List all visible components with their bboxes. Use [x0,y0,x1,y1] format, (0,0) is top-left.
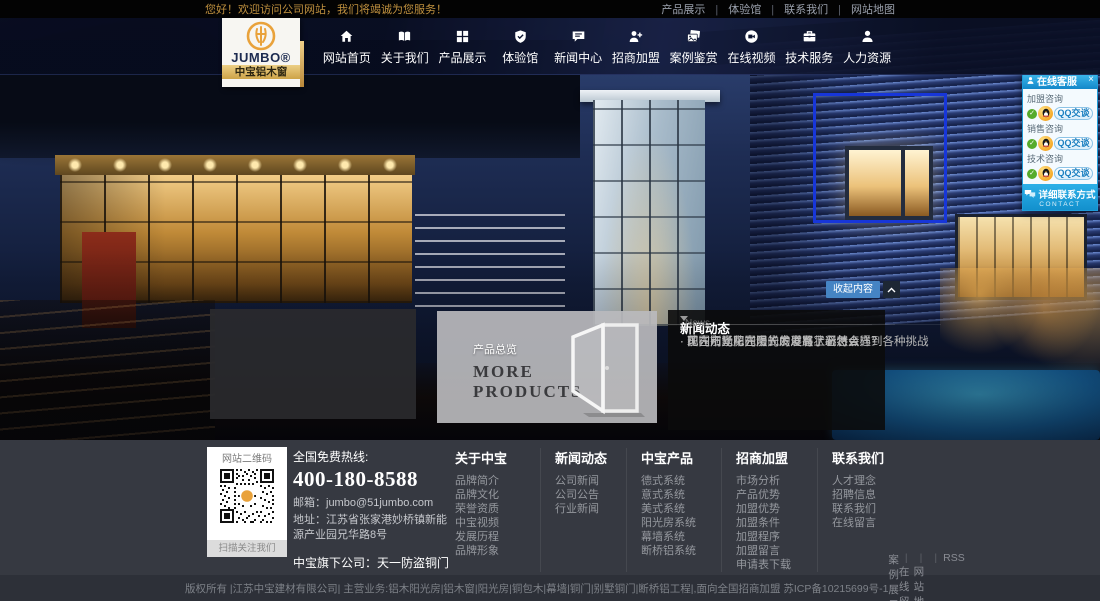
top-utility-bar: 您好！欢迎访问公司网站，我们将竭诚为您服务！ 产品展示 体验馆 联系我们 网站地… [0,0,1100,18]
service-panel-body: 加盟咨询 ✓ QQ交谈 销售咨询 ✓ [1023,89,1097,184]
bottom-links: 案例展示 在线留言 网站地图 RSS [888,552,964,601]
bottom-link-rss[interactable]: RSS [928,552,964,601]
logo-emblem-icon [246,21,276,51]
footer-link[interactable]: 意式系统 [641,488,709,502]
copyright-text: 版权所有 |江苏中宝建材有限公司| 主营业务:铝木阳光房|铝木窗|阳光房|铜包木… [185,581,888,596]
service-group-tech: 技术咨询 ✓ QQ交谈 [1027,153,1093,181]
footer-link[interactable]: 断桥铝系统 [641,544,709,558]
footer-col-title: 关于中宝 [455,448,528,467]
book-icon [397,29,412,44]
qr-caption: 扫描关注我们 [207,540,287,557]
footer-email: 邮箱：jumbo@51jumbo.com [293,496,453,511]
topbar-links: 产品展示 体验馆 联系我们 网站地图 [661,1,895,17]
close-icon[interactable]: × [1088,75,1094,85]
user-icon [860,29,875,44]
bottom-link-message[interactable]: 在线留言 [899,552,914,601]
nav-label: 人力资源 [843,49,891,66]
topbar-link-contact[interactable]: 联系我们 [761,1,828,17]
nav-item-home[interactable]: 网站首页 [318,18,376,75]
footer-link[interactable]: 美式系统 [641,502,709,516]
news-item[interactable]: 花园阳光房在漫长的道路上必然会遇到各种挑战 [668,324,941,357]
qq-penguin-icon [1038,106,1053,121]
bottom-link-sitemap[interactable]: 网站地图 [914,552,929,601]
footer-link[interactable]: 幕墙系统 [641,530,709,544]
nav-label: 在线视频 [727,49,775,66]
service-group-label: 加盟咨询 [1027,93,1093,106]
news-dropdown-caret-icon[interactable] [680,316,688,321]
footer-link[interactable]: 德式系统 [641,474,709,488]
welcome-message: 您好！欢迎访问公司网站，我们将竭诚为您服务！ [205,1,447,17]
footer-link[interactable]: 产品优势 [736,488,805,502]
footer-link[interactable]: 联系我们 [832,502,896,516]
qr-title: 网站二维码 [207,447,287,465]
footer-col-about: 关于中宝 品牌简介 品牌文化 荣誉资质 中宝视频 发展历程 品牌形象 [455,448,541,572]
collapse-control: 收起内容 [826,281,900,298]
footer-col-title: 新闻动态 [555,448,614,467]
footer-link[interactable]: 行业新闻 [555,502,614,516]
page: 您好！欢迎访问公司网站，我们将竭诚为您服务！ 产品展示 体验馆 联系我们 网站地… [0,0,1100,601]
nav-item-services[interactable]: 技术服务 [780,18,838,75]
footer-link[interactable]: 市场分析 [736,474,805,488]
online-status-icon: ✓ [1027,139,1037,149]
hotline-block: 全国免费热线: 400-180-8588 邮箱：jumbo@51jumbo.co… [293,448,453,571]
products-dark-panel[interactable] [210,309,416,419]
footer-link[interactable]: 加盟优势 [736,502,805,516]
footer-link[interactable]: 中宝视频 [455,516,528,530]
service-row: ✓ QQ交谈 [1027,136,1093,151]
nav-label: 招商加盟 [612,49,660,66]
online-service-panel: 在线客服 × 加盟咨询 ✓ QQ交谈 销售咨询 [1022,70,1098,211]
footer-link[interactable]: 品牌简介 [455,474,528,488]
more-products-panel[interactable]: 产品总览 MORE PRODUCTS [437,311,657,423]
hotline-label: 全国免费热线: [293,448,453,465]
footer-link[interactable]: 公司新闻 [555,474,614,488]
footer-col-title: 中宝产品 [641,448,709,467]
hero-photo: 收起内容 产品总览 MORE PRODUCTS 新闻动态 News [0,18,1100,440]
service-group-sales: 销售咨询 ✓ QQ交谈 [1027,123,1093,151]
brand-logo[interactable]: JUMBO® 中宝铝木窗 [222,17,300,87]
shield-icon [513,29,528,44]
footer-col-title: 招商加盟 [736,448,805,467]
service-row: ✓ QQ交谈 [1027,166,1093,181]
footer-col-news: 新闻动态 公司新闻 公司公告 行业新闻 [541,448,627,572]
contact-details-sublabel: CONTACT [1023,201,1097,208]
footer-link[interactable]: 品牌文化 [455,488,528,502]
photos-icon [686,29,701,44]
contact-details-label: 详细联系方式 [1038,187,1095,201]
nav-item-videos[interactable]: 在线视频 [723,18,781,75]
nav-label: 案例鉴赏 [670,49,718,66]
footer-link[interactable]: 发展历程 [455,530,528,544]
footer-link[interactable]: 申请表下载 [736,558,805,572]
footer-link[interactable]: 加盟程序 [736,530,805,544]
nav-item-hr[interactable]: 人力资源 [838,18,896,75]
footer-columns: 关于中宝 品牌简介 品牌文化 荣誉资质 中宝视频 发展历程 品牌形象 新闻动态 … [455,448,908,572]
online-status-icon: ✓ [1027,109,1037,119]
qr-card: 网站二维码 扫描关注我们 [207,447,287,557]
collapse-toggle-square[interactable] [883,281,900,298]
open-window-illustration [559,319,651,419]
qq-chat-button[interactable]: QQ交谈 [1054,167,1093,180]
bottom-bar: 版权所有 |江苏中宝建材有限公司| 主营业务:铝木阳光房|铝木窗|阳光房|铜包木… [0,575,1100,601]
nav-item-about[interactable]: 关于我们 [376,18,434,75]
footer-link[interactable]: 人才理念 [832,474,896,488]
online-status-icon: ✓ [1027,169,1037,179]
footer-col-franchise: 招商加盟 市场分析 产品优势 加盟优势 加盟条件 加盟程序 加盟留言 申请表下载 [722,448,818,572]
service-group-label: 销售咨询 [1027,123,1093,136]
service-group-label: 技术咨询 [1027,153,1093,166]
main-nav-bar: JUMBO® 中宝铝木窗 网站首页 关于我们 产品展示 体验馆 新闻中心 [0,18,1100,75]
nav-item-news[interactable]: 新闻中心 [549,18,607,75]
footer-link[interactable]: 加盟留言 [736,544,805,558]
nav-item-products[interactable]: 产品展示 [434,18,492,75]
person-icon [1026,76,1035,85]
qq-penguin-icon [1038,136,1053,151]
contact-details-button[interactable]: 详细联系方式 CONTACT [1023,184,1097,210]
bottom-link-cases[interactable]: 案例展示 [888,552,899,601]
nav-label: 网站首页 [323,49,371,66]
topbar-link-sitemap[interactable]: 网站地图 [828,1,895,17]
topbar-link-showroom[interactable]: 体验馆 [705,1,761,17]
briefcase-icon [802,29,817,44]
footer-col-products: 中宝产品 德式系统 意式系统 美式系统 阳光房系统 幕墙系统 断桥铝系统 [627,448,722,572]
grid-icon [455,29,470,44]
footer-link[interactable]: 加盟条件 [736,516,805,530]
chat-icon [571,29,586,44]
footer-link[interactable]: 招聘信息 [832,488,896,502]
home-icon [339,29,354,44]
nav-menu: 网站首页 关于我们 产品展示 体验馆 新闻中心 招商加盟 [318,18,896,75]
footer-subsidiary: 中宝旗下公司：天一防盗铜门 [293,554,453,571]
logo-subtitle-text: 中宝铝木窗 [222,65,300,79]
footer-link[interactable]: 在线留言 [832,516,896,530]
hero-highlight-box [813,93,947,223]
footer-col-title: 联系我们 [832,448,896,467]
footer-address: 地址：江苏省张家港妙桥镇新能源产业园兄华路8号 [293,513,453,543]
collapse-content-button[interactable]: 收起内容 [826,281,880,298]
nav-label: 体验馆 [502,49,538,66]
news-panel: 新闻动态 News 现在别墅阳光房的发展有了新特点 国内市场花园阳光房发展状况怎… [668,310,885,430]
user-plus-icon [628,29,643,44]
chat-bubbles-icon [1024,189,1036,199]
nav-label: 新闻中心 [554,49,602,66]
nav-item-franchise[interactable]: 招商加盟 [607,18,665,75]
footer-link[interactable]: 阳光房系统 [641,516,709,530]
nav-item-showroom[interactable]: 体验馆 [491,18,549,75]
nav-item-cases[interactable]: 案例鉴赏 [665,18,723,75]
nav-label: 关于我们 [381,49,429,66]
qr-code [218,467,276,525]
logo-brand-text: JUMBO® [222,51,300,64]
nav-label: 技术服务 [785,49,833,66]
footer-link[interactable]: 荣誉资质 [455,502,528,516]
footer-link[interactable]: 公司公告 [555,488,614,502]
chevron-up-icon [887,287,896,293]
service-row: ✓ QQ交谈 [1027,106,1093,121]
hotline-number: 400-180-8588 [293,467,453,492]
qq-chat-button[interactable]: QQ交谈 [1054,107,1093,120]
video-icon [744,29,759,44]
topbar-link-products[interactable]: 产品展示 [661,1,705,17]
footer-link[interactable]: 品牌形象 [455,544,528,558]
news-panel-header: 新闻动态 News [668,310,885,324]
nav-label: 产品展示 [438,49,486,66]
qq-chat-button[interactable]: QQ交谈 [1054,137,1093,150]
service-group-franchise: 加盟咨询 ✓ QQ交谈 [1027,93,1093,121]
qq-penguin-icon [1038,166,1053,181]
